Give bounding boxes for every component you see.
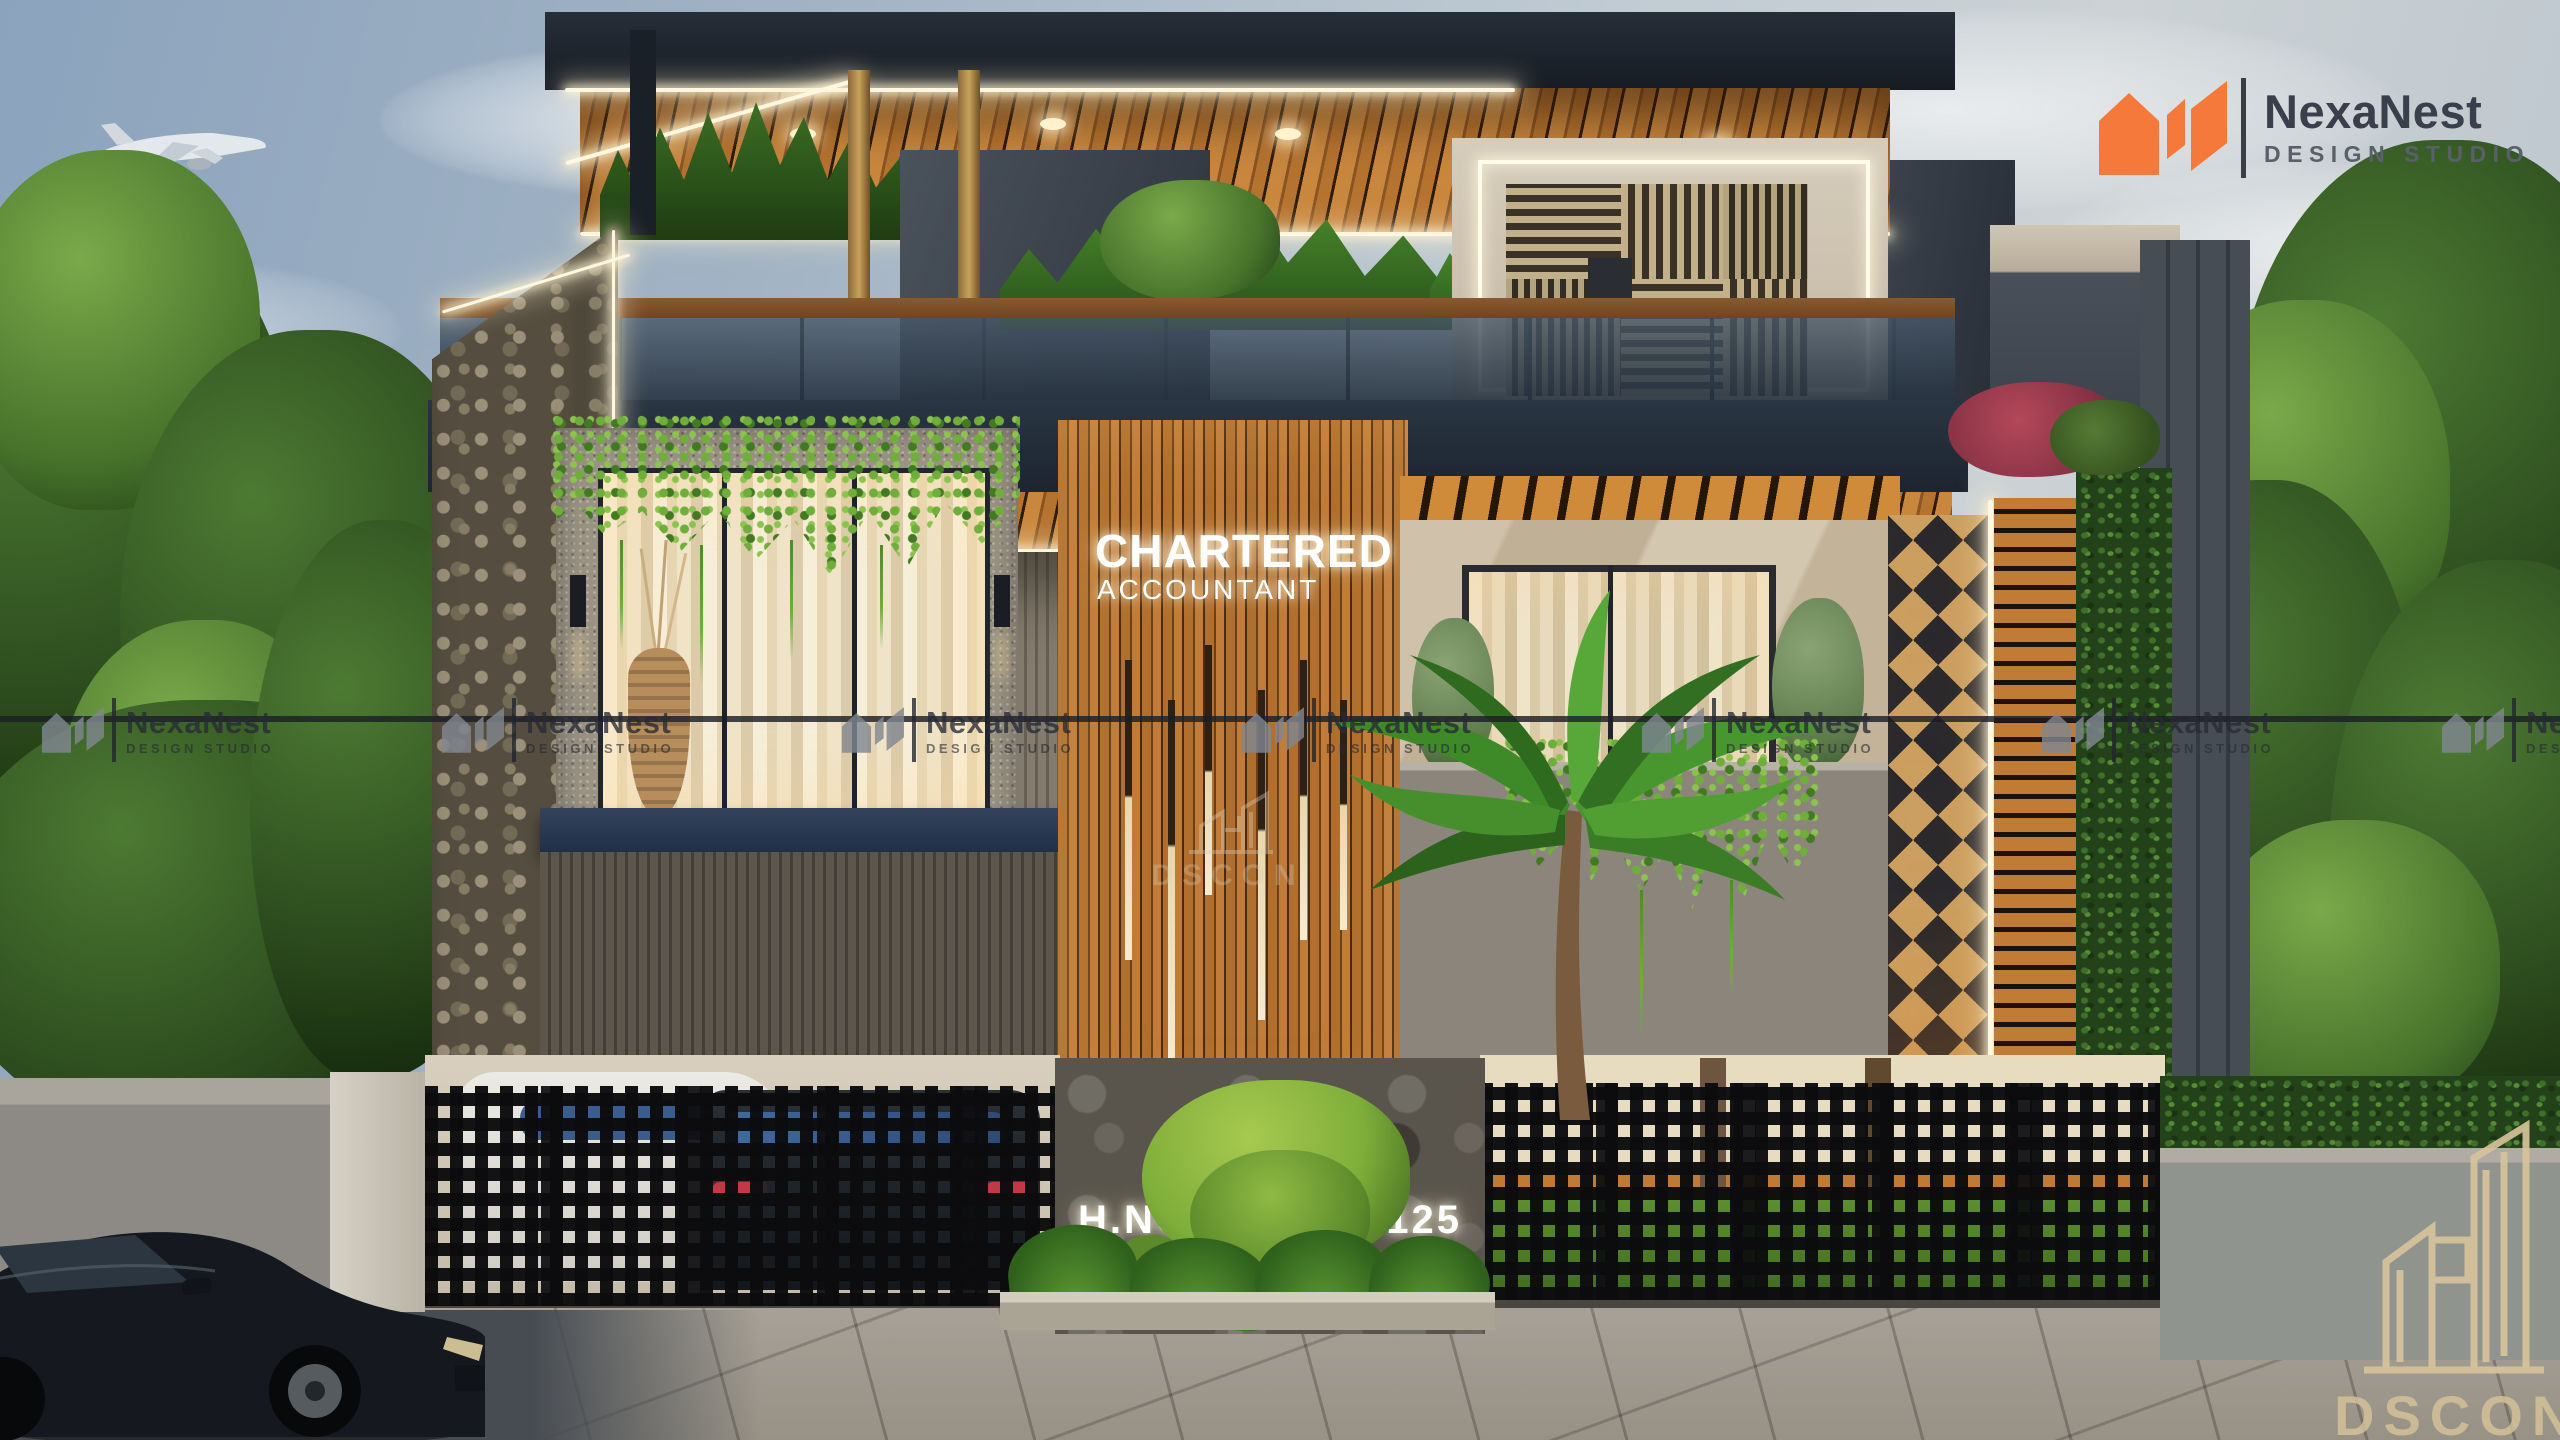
bronze-post: [848, 70, 870, 310]
divider: [112, 698, 116, 762]
planter-curb: [1000, 1292, 1495, 1330]
houses-icon: [1240, 707, 1304, 753]
wall-sconce: [570, 575, 586, 627]
vine-strand: [700, 545, 703, 685]
fence-left: [425, 1086, 1060, 1306]
dscon-building-icon: [2328, 1112, 2560, 1374]
nexanest-watermark: NexaNestDESIGN STUDIO: [1240, 688, 1560, 772]
nexanest-watermark: NexaNestDESIGN STUDIO: [1640, 688, 1960, 772]
divider: [1712, 698, 1716, 762]
houses-icon: [2040, 707, 2104, 753]
dscon-label: DSCON: [1138, 859, 1318, 893]
divider: [1312, 698, 1316, 762]
watermark-tagline: DESIGN STUDIO: [1326, 741, 1474, 756]
wall-sconce: [994, 575, 1010, 627]
watermark-name: NexaNest: [526, 705, 674, 741]
terrace-rail-glass: [440, 318, 1955, 402]
brand-tagline: DESIGN STUDIO: [2264, 141, 2530, 168]
dscon-watermark-center: DSCON: [1138, 790, 1318, 893]
nexanest-watermark: NexaNestDESIGN STUDIO: [840, 688, 1160, 772]
wood-slat-column: [1994, 498, 2078, 1117]
palm-tree: [1240, 560, 1880, 1120]
terrace-rail-cap: [440, 298, 1955, 318]
nexanest-watermark: NexaNestDESIGN STUDIO: [40, 688, 360, 772]
brand-name: NexaNest: [2264, 88, 2530, 135]
watermark-tagline: DESIGN STUDIO: [926, 741, 1074, 756]
downlight: [1040, 118, 1066, 130]
dscon-building-icon: [1173, 790, 1283, 854]
terrace-plants: [1100, 180, 1280, 300]
canopy-post: [630, 30, 656, 235]
dscon-label: DSCON: [2334, 1383, 2560, 1440]
divider: [2512, 698, 2516, 762]
slat-tile: [1723, 184, 1808, 279]
bronze-post: [958, 70, 980, 310]
divider: [912, 698, 916, 762]
brand-logo: NexaNest DESIGN STUDIO: [2095, 76, 2530, 180]
houses-icon: [440, 707, 504, 753]
dscon-watermark-corner: DSCON: [2328, 1112, 2560, 1440]
houses-icon: [840, 707, 904, 753]
flower-planter-green: [2050, 400, 2160, 475]
watermark-name: NexaNest: [1726, 705, 1874, 741]
column-led-strip: [1988, 500, 1993, 1117]
watermark-tagline: DESIGN STUDIO: [2526, 741, 2560, 756]
houses-icon: [2440, 707, 2504, 753]
houses-icon: [40, 707, 104, 753]
nexanest-watermark: NexaNestDESIGN STUDIO: [2440, 688, 2560, 772]
brand-divider: [2241, 78, 2246, 178]
divider: [2112, 698, 2116, 762]
nexanest-watermark: NexaNestDESIGN STUDIO: [440, 688, 760, 772]
watermark-name: NexaNest: [2526, 705, 2560, 741]
architectural-render: CHARTERED ACCOUNTANT: [0, 0, 2560, 1440]
vine-strand: [790, 540, 793, 660]
slat-tile: [1621, 184, 1724, 279]
watermark-tagline: DESIGN STUDIO: [2126, 741, 2274, 756]
vine-strand: [620, 540, 623, 650]
brand-houses-icon: [2095, 76, 2227, 180]
watermark-name: NexaNest: [1326, 705, 1474, 741]
hedge-column: [2076, 468, 2172, 1118]
balcony-ledge: [540, 808, 1102, 852]
mosaic-column: [1888, 515, 1988, 1117]
roof-fascia: [545, 12, 1955, 90]
divider: [512, 698, 516, 762]
roof-led-strip: [565, 88, 1515, 92]
watermark-tagline: DESIGN STUDIO: [526, 741, 674, 756]
houses-icon: [1640, 707, 1704, 753]
watermark-name: NexaNest: [126, 705, 274, 741]
black-sedan: [0, 1185, 485, 1440]
vine-strand: [880, 545, 883, 650]
watermark-name: NexaNest: [926, 705, 1074, 741]
watermark-tagline: DESIGN STUDIO: [126, 741, 274, 756]
nexanest-watermark: NexaNestDESIGN STUDIO: [2040, 688, 2360, 772]
downlight: [1275, 128, 1301, 140]
watermark-name: NexaNest: [2126, 705, 2274, 741]
pergola-right: [1400, 476, 1900, 522]
watermark-tagline: DESIGN STUDIO: [1726, 741, 1874, 756]
